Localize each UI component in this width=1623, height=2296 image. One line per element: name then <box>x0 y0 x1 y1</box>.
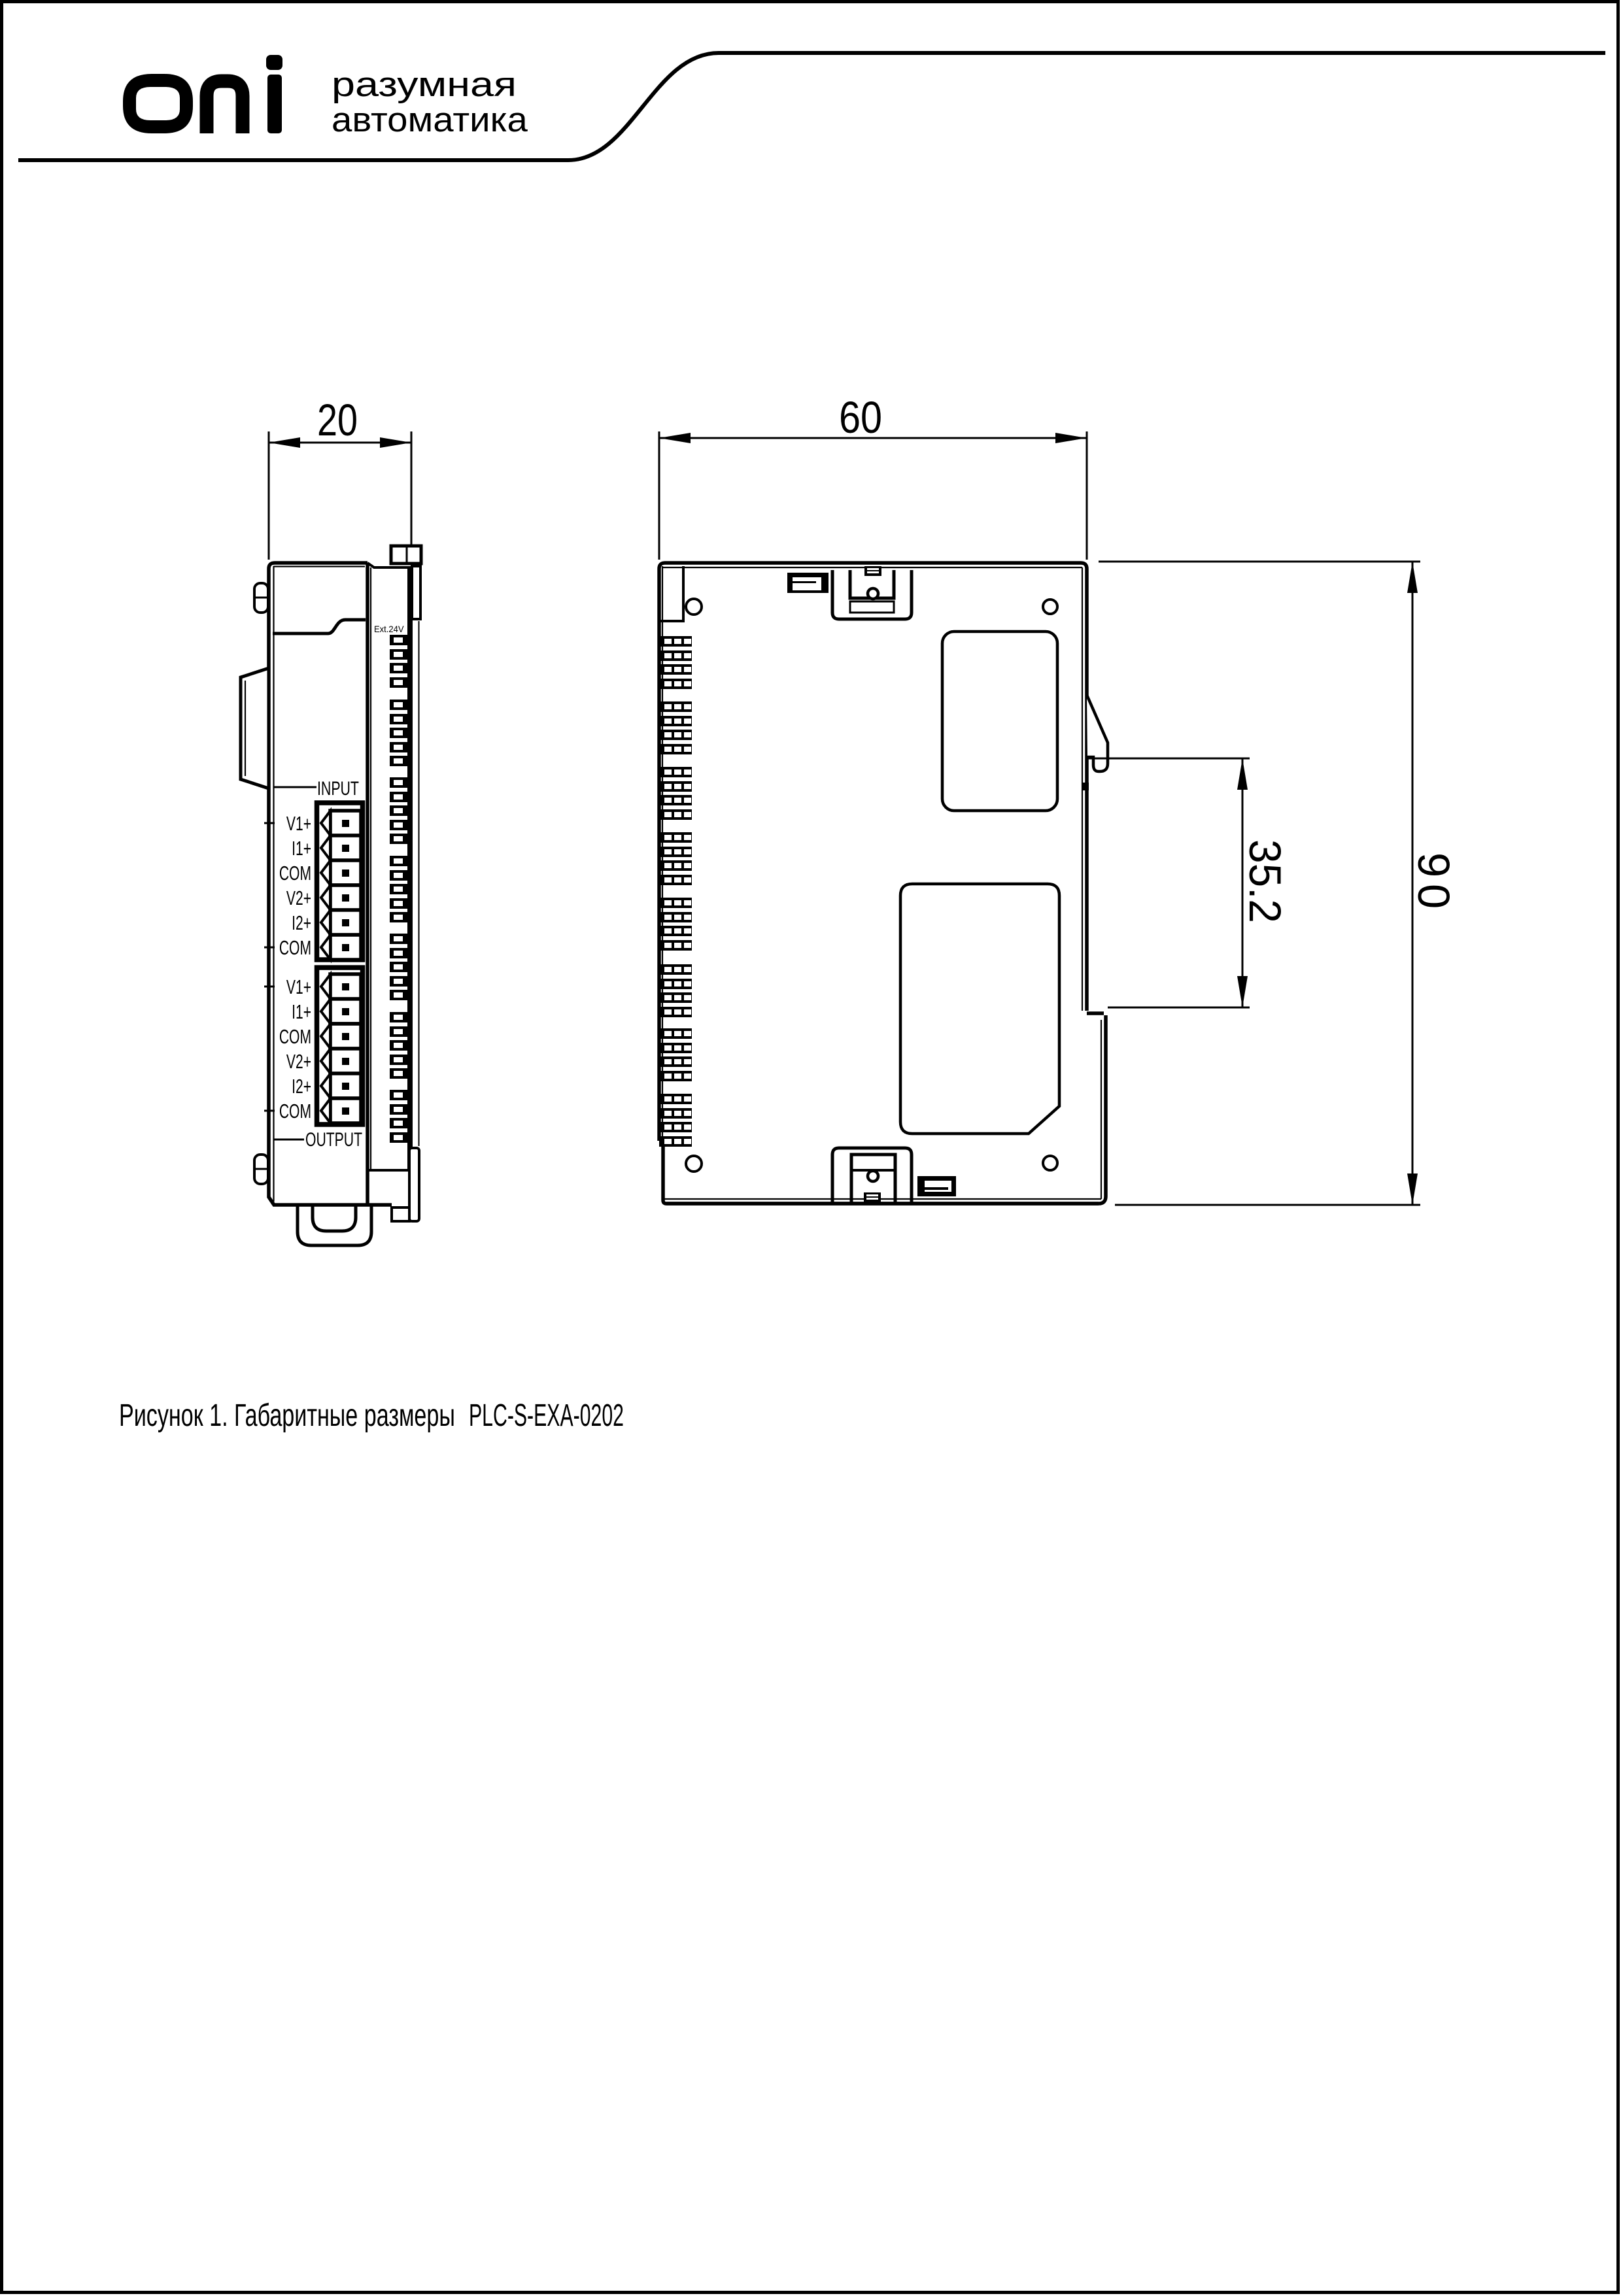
svg-text:COM: COM <box>279 936 311 959</box>
svg-text:I2+: I2+ <box>292 1075 311 1098</box>
svg-text:I1+: I1+ <box>292 1000 311 1023</box>
svg-text:COM: COM <box>279 862 311 885</box>
svg-text:V1+: V1+ <box>286 812 311 835</box>
svg-text:автоматика: автоматика <box>332 100 528 139</box>
svg-text:PLC-S-EXA-0202: PLC-S-EXA-0202 <box>469 1398 624 1433</box>
svg-text:INPUT: INPUT <box>317 777 359 800</box>
svg-text:V2+: V2+ <box>286 1050 311 1073</box>
svg-text:60: 60 <box>839 392 882 443</box>
svg-text:I1+: I1+ <box>292 837 311 860</box>
svg-text:COM: COM <box>279 1100 311 1123</box>
svg-text:Рисунок 1. Габаритные размеры: Рисунок 1. Габаритные размеры <box>119 1397 455 1432</box>
svg-text:разумная: разумная <box>332 65 517 104</box>
svg-text:COM: COM <box>279 1025 311 1048</box>
svg-text:V2+: V2+ <box>286 886 311 909</box>
svg-text:V1+: V1+ <box>286 975 311 998</box>
svg-text:20: 20 <box>317 395 358 445</box>
svg-text:9: 9 <box>1409 853 1459 877</box>
svg-text:I2+: I2+ <box>292 911 311 934</box>
svg-text:35.2: 35.2 <box>1240 839 1290 923</box>
svg-text:0: 0 <box>1409 884 1459 909</box>
svg-text:Ext.24V: Ext.24V <box>374 624 404 635</box>
svg-text:OUTPUT: OUTPUT <box>305 1128 362 1151</box>
